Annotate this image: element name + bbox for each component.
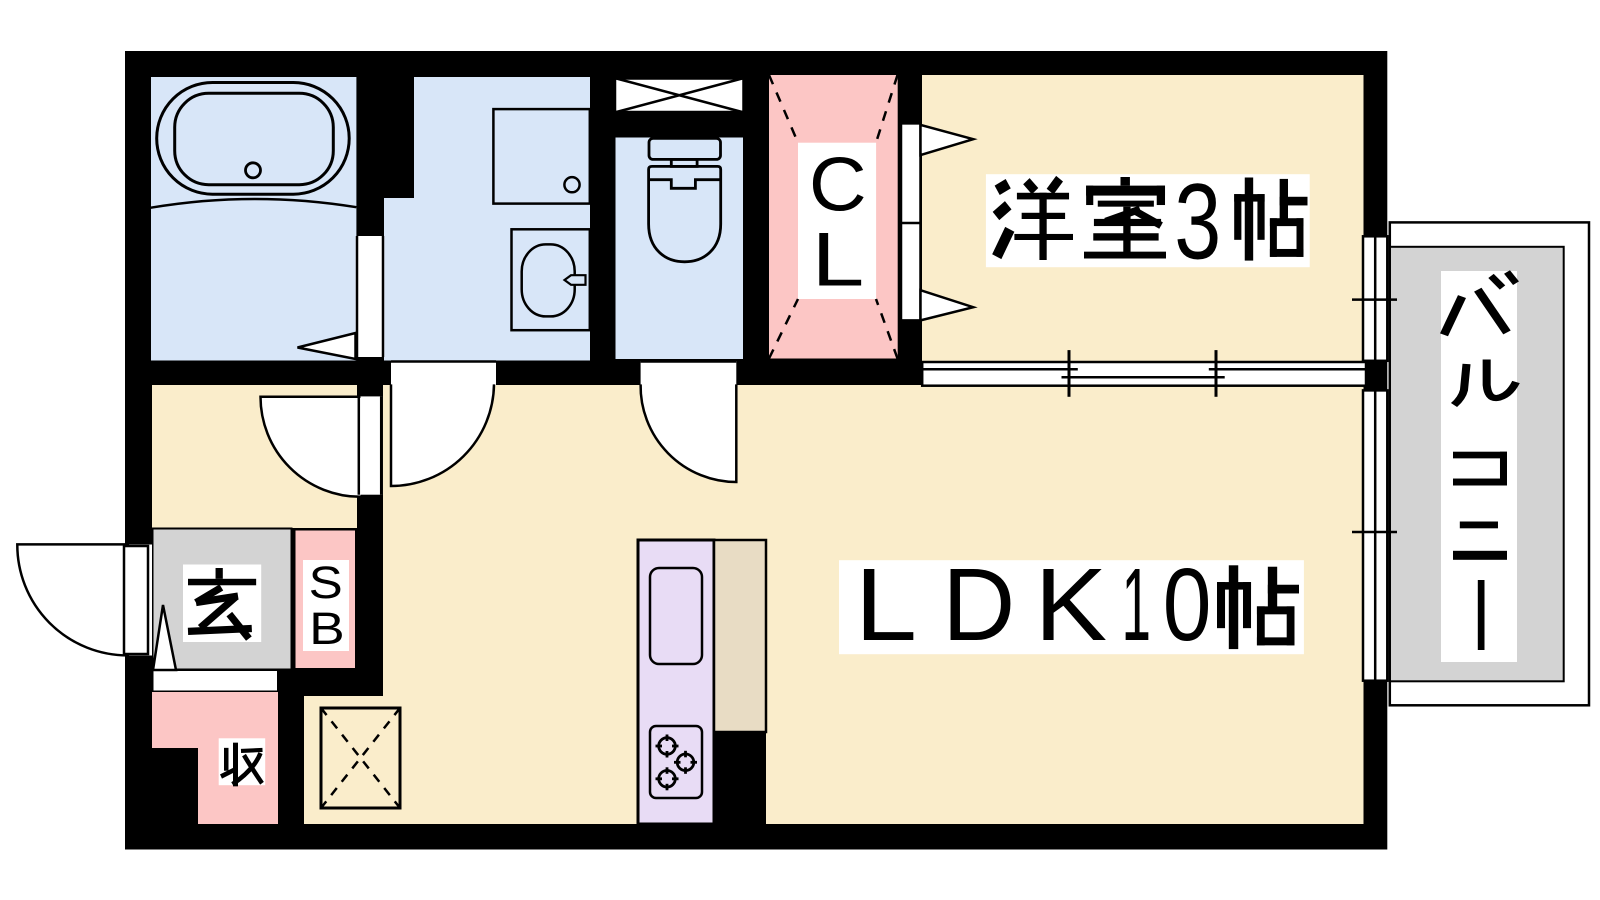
svg-text:0: 0 <box>1163 547 1212 662</box>
svg-text:3: 3 <box>1174 160 1221 281</box>
svg-text:L: L <box>812 217 865 302</box>
svg-text:K: K <box>1035 547 1108 662</box>
svg-text:L: L <box>855 547 917 662</box>
svg-text:D: D <box>942 547 1015 662</box>
svg-text:S: S <box>309 557 343 608</box>
svg-text:1: 1 <box>1122 547 1151 662</box>
svg-text:C: C <box>809 142 867 227</box>
svg-text:B: B <box>309 603 345 654</box>
